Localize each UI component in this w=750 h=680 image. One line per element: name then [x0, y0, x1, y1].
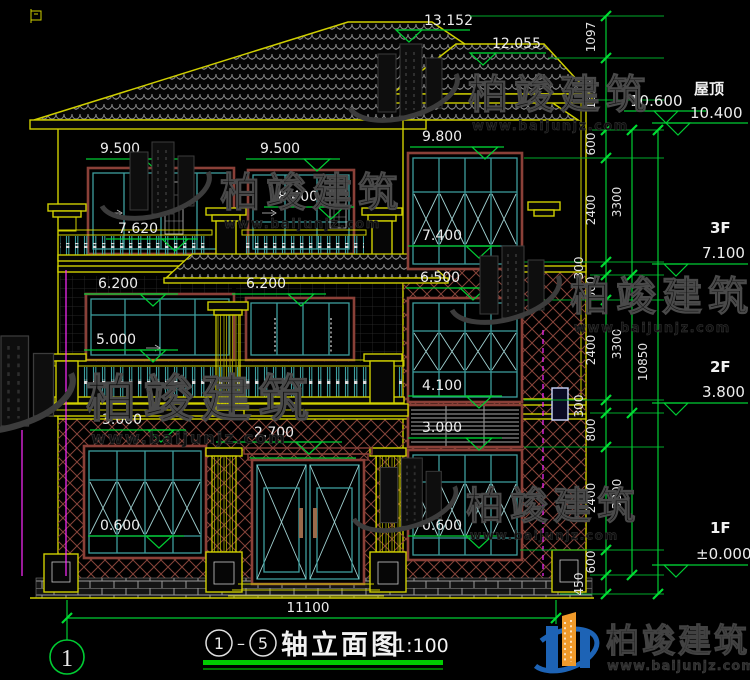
title-axis-end: 5 — [258, 634, 268, 653]
title-separator: – — [237, 634, 245, 653]
watermark-url: www.baijunjz.com — [224, 217, 381, 232]
title-text: 轴立面图 — [281, 629, 401, 661]
dim-2400a: 2400 — [584, 195, 598, 226]
dim-1097: 1097 — [584, 22, 598, 53]
watermark-name: 柏竣建筑 — [466, 484, 641, 528]
dim-600c: 600 — [584, 551, 598, 574]
level-roof-label: 屋顶 — [694, 80, 724, 98]
brand-name: 柏竣建筑 — [606, 621, 750, 660]
dim-800: 800 — [584, 419, 598, 442]
elevation-drawing: 13.152 12.055 9.500 9.500 9.800 8.400 7.… — [0, 0, 750, 680]
pent-roof — [164, 254, 448, 283]
watermark-name: 柏竣建筑 — [86, 370, 316, 428]
watermark-url: www.baijunjz.com — [470, 529, 619, 543]
level-1f-elev: ±0.000 — [696, 545, 750, 563]
watermark-name: 柏竣建筑 — [220, 170, 404, 216]
cad-elevation-screenshot: 13.152 12.055 9.500 9.500 9.800 8.400 7.… — [0, 0, 750, 680]
side-window — [552, 388, 568, 420]
dim-11100: 11100 — [287, 600, 330, 616]
axis-bubble-number: 1 — [61, 646, 73, 672]
window-1f-left — [84, 446, 206, 558]
dim-600a: 600 — [584, 133, 598, 156]
dim-2400b: 2400 — [584, 335, 598, 366]
marker-wing3f-top: 9.800 — [422, 129, 462, 145]
marker-wing2f-top: 6.500 — [420, 270, 460, 286]
dim-10850: 10850 — [636, 343, 650, 381]
level-3f-elev: 7.100 — [702, 244, 745, 262]
marker-wing-louver: 3.000 — [422, 420, 462, 436]
dim-3300a: 3300 — [610, 187, 624, 218]
level-1f-label: 1F — [710, 519, 731, 537]
level-2f-label: 2F — [710, 358, 731, 376]
marker-l2f-sill: 5.000 — [96, 332, 136, 348]
marker-wing3f-sill: 7.400 — [422, 228, 462, 244]
title-scale: 1:100 — [394, 635, 449, 657]
watermark-url: www.baijunjz.com — [91, 429, 287, 448]
marker-l1f-sill: 0.600 — [100, 518, 140, 534]
marker-c2f-top: 6.200 — [246, 276, 286, 292]
title-underline — [203, 660, 443, 665]
drawing-title: 1 – 5 轴立面图 1:100 — [203, 629, 449, 669]
watermark-url: www.baijunjz.com — [472, 119, 629, 134]
entry-door — [244, 448, 372, 584]
title-axis-start: 1 — [214, 634, 224, 653]
level-2f-elev: 3.800 — [702, 383, 745, 401]
marker-rail3f: 7.620 — [118, 221, 158, 237]
watermark-url: www.baijunjz.com — [574, 321, 731, 336]
marker-l2f-top: 6.200 — [98, 276, 138, 292]
level-3f-label: 3F — [710, 219, 731, 237]
door-handle-left — [299, 508, 303, 538]
marker-c3f-top: 9.500 — [260, 141, 300, 157]
dim-450: 450 — [572, 573, 586, 596]
doors-2f-center — [246, 298, 354, 360]
marker-ridge-wing: 12.055 — [492, 36, 541, 52]
marker-ridge-main: 13.152 — [424, 13, 473, 29]
dim-300b: 300 — [572, 395, 586, 418]
brand-url: www.baijunjz.com — [607, 659, 750, 674]
door-handle-right — [313, 508, 317, 538]
level-roof-elev: 10.400 — [690, 104, 743, 122]
marker-wing2f-sill: 4.100 — [422, 378, 462, 394]
watermark-name: 柏竣建筑 — [468, 72, 652, 118]
watermark-name: 柏竣建筑 — [570, 274, 750, 320]
pedestal-left-edge — [44, 554, 78, 592]
